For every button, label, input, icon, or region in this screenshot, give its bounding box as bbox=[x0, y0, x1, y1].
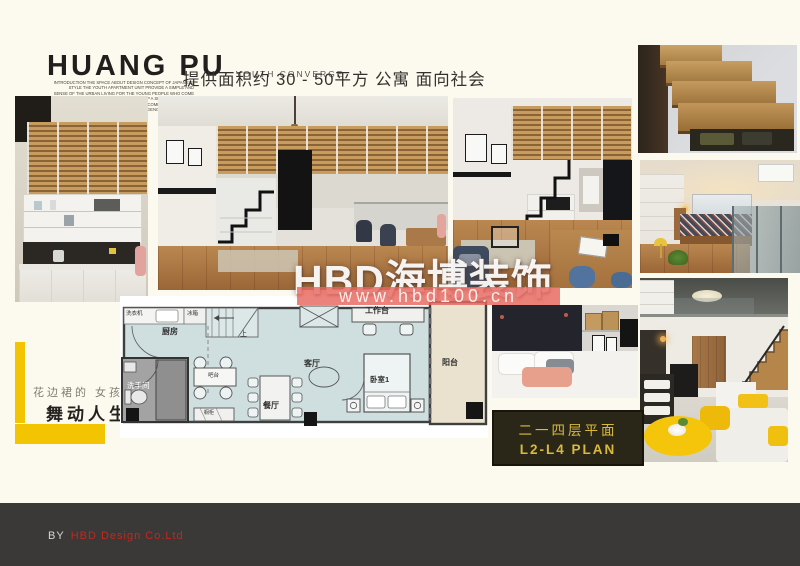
wood-crate bbox=[585, 313, 602, 331]
shelf-item bbox=[50, 200, 56, 210]
pink-towel bbox=[135, 246, 146, 276]
plan-label-bedroom: 卧室1 bbox=[370, 376, 389, 384]
yellow-bench-cushion bbox=[738, 394, 768, 408]
drawer-front bbox=[644, 406, 670, 415]
backsplash bbox=[23, 242, 140, 264]
accent-bar-vertical bbox=[15, 342, 25, 423]
photo-loft-bedroom bbox=[640, 160, 800, 273]
footer-by: BY bbox=[48, 530, 65, 542]
black-stripe bbox=[453, 172, 511, 177]
wall-frame bbox=[166, 140, 184, 164]
ceiling bbox=[158, 96, 448, 130]
floor-plan: 洗衣机 冰箱 厨房 上 工作台 客厅 卧室1 阳台 洗手间 吧台 餐厅 橱柜 bbox=[120, 296, 488, 438]
accent-bar-horizontal bbox=[15, 424, 105, 444]
desk-nook bbox=[579, 168, 603, 212]
open-drawer bbox=[690, 129, 794, 151]
flower-leaves bbox=[678, 418, 688, 426]
photo-stair-drawers bbox=[638, 45, 797, 153]
drawer-front bbox=[644, 393, 670, 402]
plan-label-kitchen: 厨房 bbox=[162, 328, 178, 336]
black-band bbox=[158, 188, 216, 194]
plant bbox=[668, 250, 688, 265]
footer-bar: BYHBD Design Co.Ltd bbox=[0, 503, 800, 566]
plan-label-fridge: 冰箱 bbox=[187, 312, 198, 318]
nook-opening bbox=[583, 176, 599, 204]
tagline: 提供面积约 30 - 50平方 公寓 面向社会 bbox=[183, 66, 486, 90]
black-counter bbox=[670, 364, 698, 400]
upper-glass bbox=[674, 298, 754, 315]
folded-clothes bbox=[700, 133, 734, 145]
shelf-item bbox=[94, 199, 120, 211]
dark-chair bbox=[356, 220, 372, 242]
plan-label-bathroom: 洗手间 bbox=[127, 382, 150, 390]
plan-label-bar: 吧台 bbox=[208, 374, 219, 380]
side-note-line1: 花边裙的 女孩 bbox=[33, 384, 123, 400]
warm-lamp bbox=[660, 336, 666, 342]
glass-railing bbox=[732, 206, 800, 273]
shelf-unit bbox=[23, 194, 142, 244]
fineprint-line: INTRODUCTION THE SPACE ABOUT DESIGN CONC… bbox=[47, 80, 194, 91]
plan-label-living: 客厅 bbox=[304, 360, 320, 368]
plan-label-dining: 餐厅 bbox=[263, 402, 279, 410]
photo-kitchen bbox=[15, 96, 148, 302]
folded-clothes bbox=[742, 132, 772, 145]
wall-frame bbox=[606, 337, 617, 352]
watermark-url-banner: www.hbd100.cn bbox=[297, 287, 560, 305]
dark-doorway bbox=[603, 160, 632, 224]
wood-slat-panel bbox=[27, 122, 148, 194]
headboard-light bbox=[500, 315, 504, 319]
blue-chair bbox=[611, 272, 632, 288]
wall-frame bbox=[465, 134, 487, 162]
plan-label-balcony: 阳台 bbox=[442, 359, 458, 367]
pendant-light bbox=[294, 96, 296, 126]
lamp-stem bbox=[660, 244, 662, 258]
plan-label-workdesk: 工作台 bbox=[365, 307, 389, 315]
wood-crate bbox=[602, 311, 619, 331]
yellow-table bbox=[644, 416, 712, 456]
shelf-line bbox=[24, 227, 141, 228]
side-note-line2: 舞动人生 bbox=[46, 400, 130, 425]
wood-slat-band bbox=[216, 126, 448, 174]
dark-headboard-wall bbox=[492, 305, 582, 357]
plan-label-up: 上 bbox=[240, 331, 247, 338]
footer-company: HBD Design Co.Ltd bbox=[71, 530, 184, 542]
watermark-url: www.hbd100.cn bbox=[339, 286, 518, 306]
plan-title-card: 二一四层平面 L2-L4 PLAN bbox=[492, 410, 644, 466]
dark-chair bbox=[380, 224, 396, 246]
sticky-note bbox=[109, 248, 116, 254]
shelf-line bbox=[582, 330, 622, 332]
headboard-light bbox=[564, 313, 568, 317]
plan-label-washer: 洗衣机 bbox=[126, 312, 143, 318]
wall-frame bbox=[592, 335, 605, 352]
shelf-item bbox=[64, 215, 74, 226]
plan-card-line2: L2-L4 PLAN bbox=[520, 442, 617, 457]
shelf-item bbox=[34, 201, 42, 210]
wall-frame bbox=[491, 144, 507, 164]
drawer-front bbox=[644, 380, 670, 389]
black-frame bbox=[603, 234, 619, 246]
plan-card-line1: 二一四层平面 bbox=[519, 419, 618, 439]
side-table bbox=[491, 226, 519, 248]
wall-frame bbox=[188, 148, 202, 166]
yellow-sofa-cushion bbox=[768, 426, 788, 446]
kettle bbox=[53, 250, 64, 262]
photo-duplex-yellow bbox=[640, 278, 788, 462]
coat-rack-pink bbox=[437, 214, 446, 238]
pillow-salmon bbox=[522, 367, 572, 387]
stair-block bbox=[216, 178, 276, 246]
plan-label-cabinet: 橱柜 bbox=[204, 411, 214, 416]
tv-screen bbox=[620, 319, 638, 347]
black-door bbox=[278, 150, 312, 230]
photo-bedroom bbox=[492, 305, 638, 398]
presentation-board: HUANG PU YOUTH CONVERGE INTRODUCTION THE… bbox=[0, 0, 800, 566]
shelf-line bbox=[24, 211, 141, 212]
rug bbox=[218, 250, 298, 272]
stair-rail-zigzag bbox=[216, 178, 276, 246]
skylight bbox=[758, 164, 794, 182]
footer-credit: BYHBD Design Co.Ltd bbox=[48, 530, 184, 542]
